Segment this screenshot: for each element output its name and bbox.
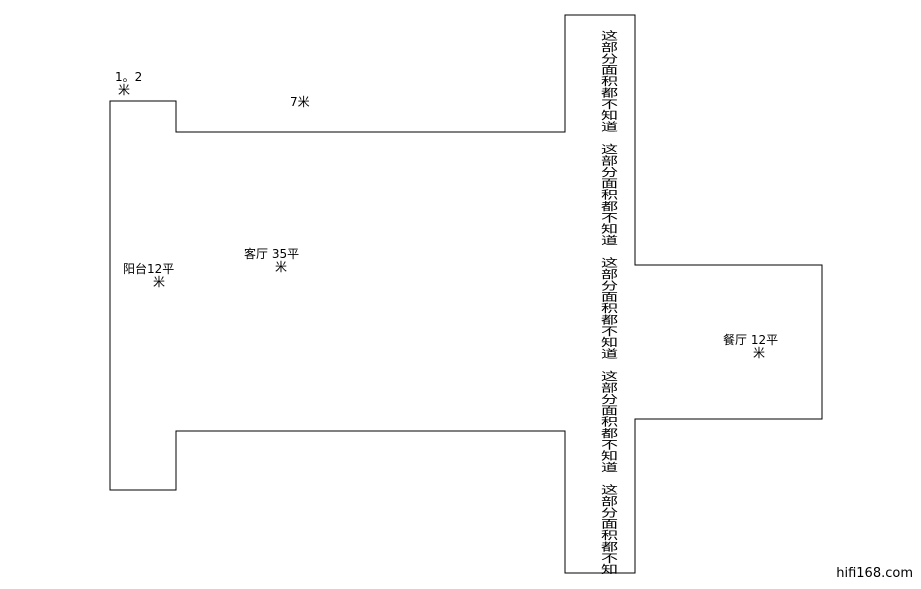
label-notch-width-value: 1。2 [115, 70, 142, 84]
label-notch-width-unit: 米 [118, 84, 142, 97]
floorplan-canvas: 1。2米 7米 阳台12平米 客厅 35平米 餐厅 12平米 这部分面积都不知道… [0, 0, 921, 589]
label-top-width: 7米 [290, 96, 310, 109]
label-livingroom-area-unit: 米 [275, 261, 299, 274]
label-livingroom-area-value: 客厅 35平 [244, 247, 299, 261]
floorplan-outline [110, 15, 822, 573]
label-balcony-area-unit: 米 [153, 276, 174, 289]
label-balcony-area: 阳台12平米 [123, 263, 174, 289]
label-livingroom-area: 客厅 35平米 [244, 248, 299, 274]
watermark-text: hifi168.com [836, 567, 913, 581]
corridor-unknown-area-note: 这部分面积都不知道 这部分面积都不知道 这部分面积都不知道 这部分面积都不知道 … [589, 30, 626, 574]
label-diningroom-area-unit: 米 [753, 347, 778, 360]
label-top-width-value: 7米 [290, 95, 310, 109]
label-diningroom-area: 餐厅 12平米 [723, 334, 778, 360]
label-diningroom-area-value: 餐厅 12平 [723, 333, 778, 347]
label-notch-width: 1。2米 [115, 71, 142, 97]
label-balcony-area-value: 阳台12平 [123, 262, 174, 276]
